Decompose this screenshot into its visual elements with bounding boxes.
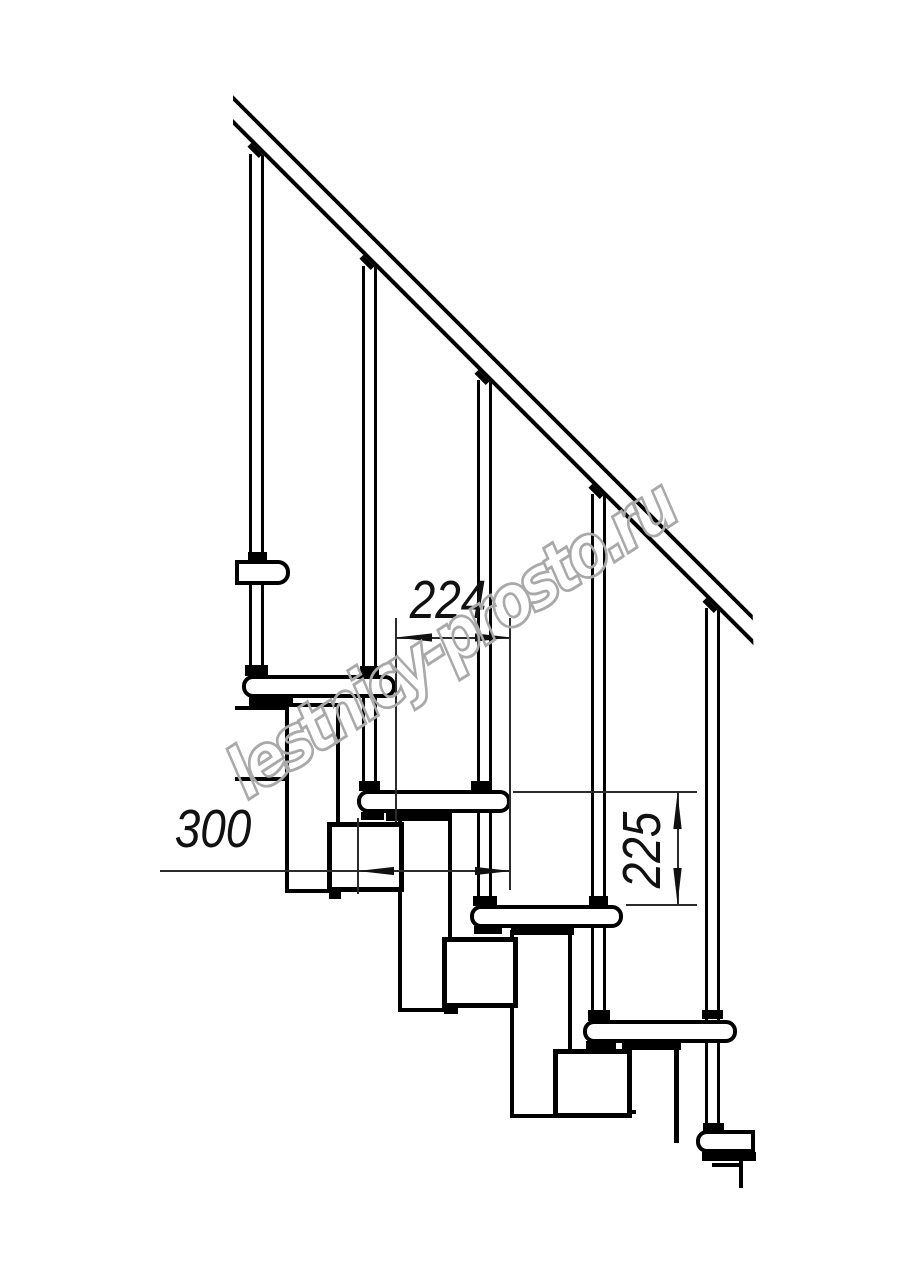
spine-box-3 — [553, 1049, 632, 1118]
baluster-3-foot — [473, 896, 497, 906]
break-mark-horizontal — [712, 1163, 742, 1167]
dim-225-ext-top — [513, 791, 697, 793]
spine-box-2-foot — [444, 1005, 458, 1014]
dim-300-line — [160, 870, 511, 872]
tread-4-underside — [622, 1041, 681, 1050]
handrail-bracket — [235, 560, 290, 585]
tread-3-underside-nub — [474, 926, 502, 934]
dim-225-arrow-up — [672, 793, 683, 829]
spine-module-4-right-edge — [674, 1045, 679, 1143]
baluster-1-bracket-mount — [248, 552, 267, 561]
baluster-3-passthrough-mount — [471, 781, 491, 791]
tread-3 — [470, 905, 623, 928]
dim-225-arrow-down — [672, 868, 683, 904]
baluster-1 — [249, 154, 264, 675]
tread-2 — [357, 790, 511, 813]
baluster-4-foot — [588, 1010, 610, 1021]
baluster-1-foot — [245, 665, 268, 676]
spine-box-2 — [442, 937, 518, 1008]
spine-box-1-foot — [329, 890, 341, 899]
tread-3-underside — [511, 926, 574, 935]
tread-2-underside-nub — [361, 812, 384, 820]
baluster-5-foot — [703, 1123, 724, 1131]
dim-225-label: 225 — [614, 795, 670, 906]
baluster-2-foot — [359, 781, 380, 791]
staircase-drawing: 224 300 225 lestnicy-prosto.ru — [0, 0, 914, 1280]
baluster-5 — [705, 608, 720, 1130]
spine-box-1 — [327, 822, 404, 892]
tread-5-cut — [696, 1130, 755, 1153]
tread-4-underside-nub — [586, 1041, 616, 1049]
baluster-4-passthrough-mount — [589, 896, 608, 906]
dim-300-ext-left — [357, 818, 359, 894]
tread-4 — [583, 1020, 737, 1043]
tread-5-underside — [702, 1152, 756, 1161]
baluster-5-passthrough-mount — [702, 1010, 723, 1019]
